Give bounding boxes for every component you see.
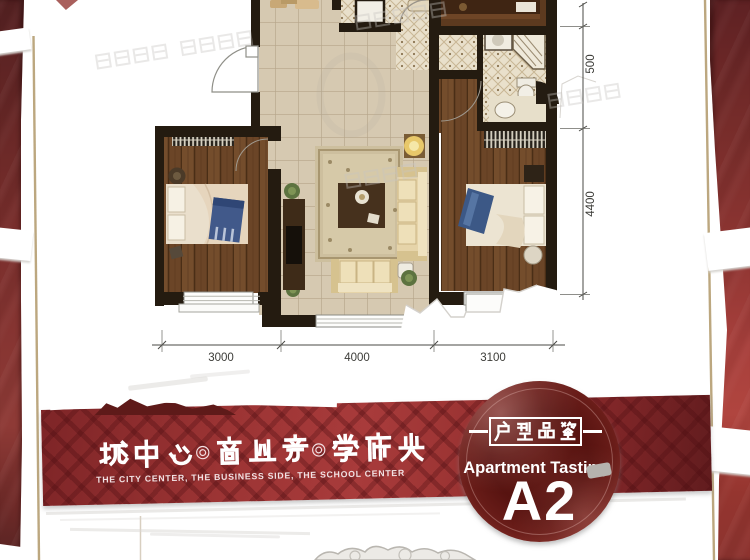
- svg-text:500: 500: [585, 54, 597, 73]
- svg-text:4400: 4400: [585, 191, 597, 217]
- svg-text:3000: 3000: [208, 352, 234, 364]
- svg-text:3100: 3100: [480, 352, 506, 364]
- svg-text:4000: 4000: [344, 352, 370, 364]
